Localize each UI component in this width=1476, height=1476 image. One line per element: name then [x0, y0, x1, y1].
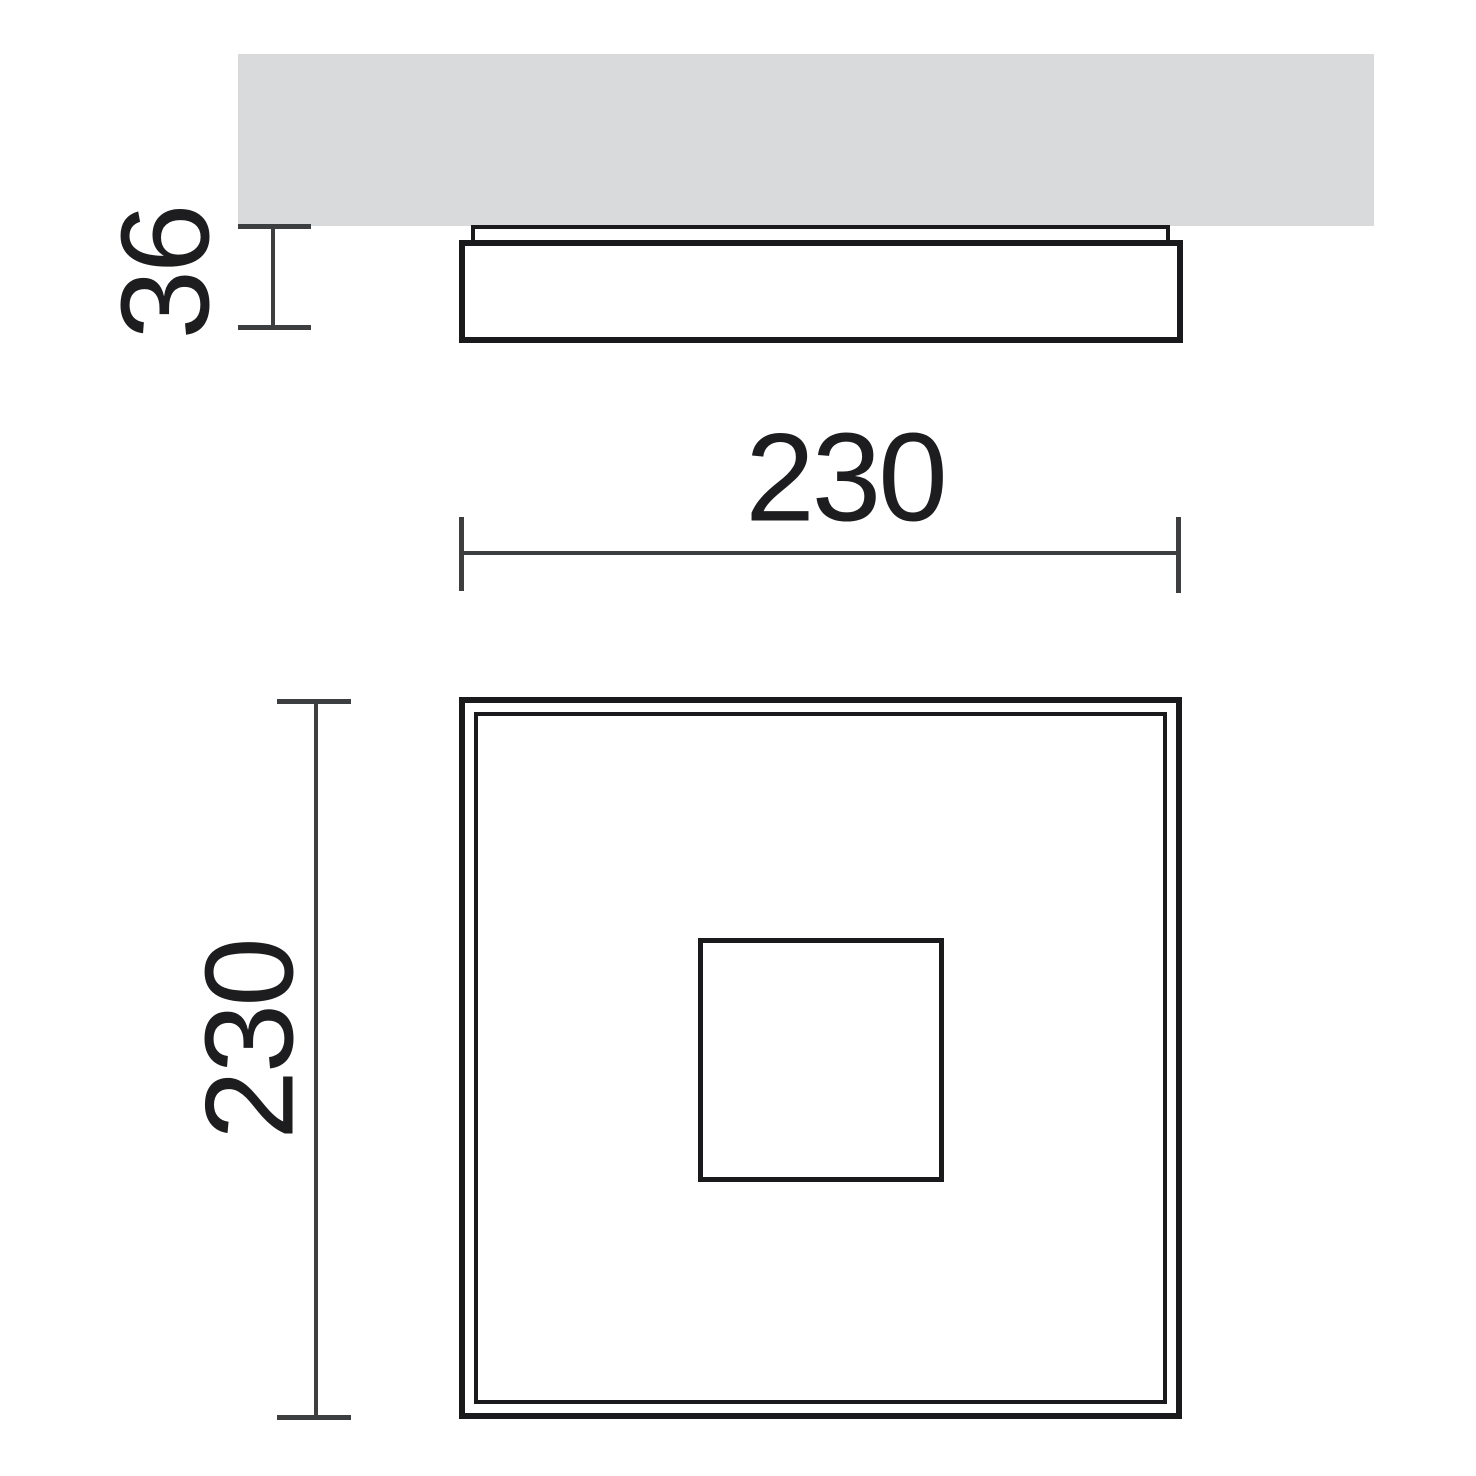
width-dimension-label: 230	[745, 416, 945, 541]
height-dimension-tick-top	[238, 224, 311, 229]
height-dimension-label: 36	[104, 206, 229, 339]
plan-center-square	[698, 938, 944, 1182]
depth-dimension-label: 230	[188, 940, 313, 1140]
height-dimension-tick-bottom	[238, 325, 311, 330]
width-dimension-line	[461, 551, 1178, 555]
fixture-side-body	[459, 240, 1183, 343]
height-dimension-line	[271, 226, 275, 328]
depth-dimension-tick-bottom	[277, 1415, 351, 1420]
depth-dimension-tick-top	[277, 699, 351, 704]
width-dimension-tick-right	[1176, 517, 1181, 593]
ceiling-slab	[238, 54, 1374, 226]
width-dimension-tick-left	[459, 517, 464, 591]
dimension-drawing: 36 230 230	[0, 0, 1476, 1476]
